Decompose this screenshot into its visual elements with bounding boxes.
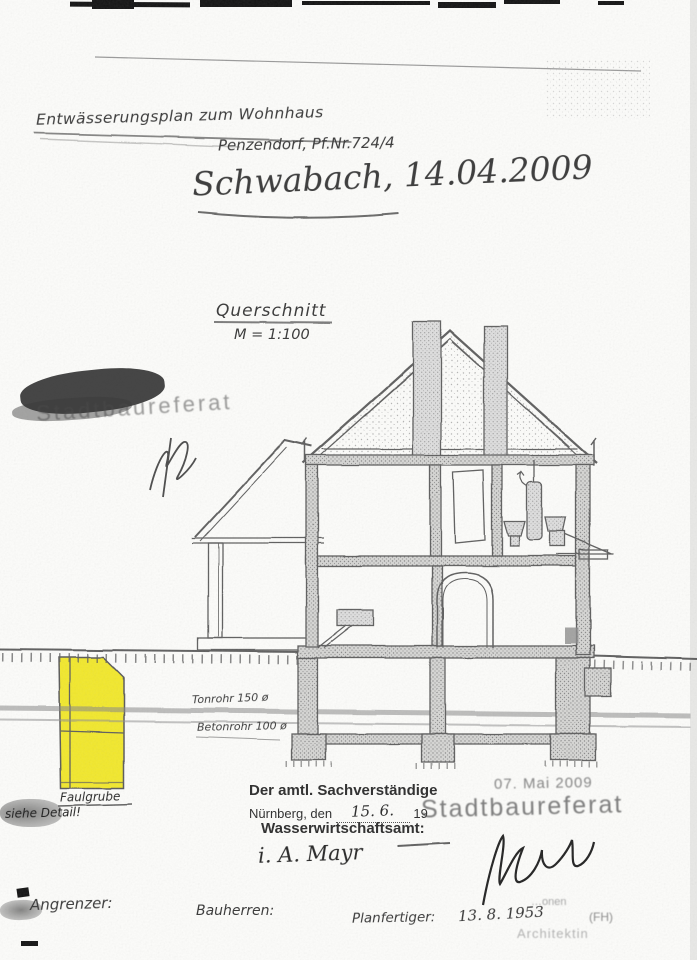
section-scale: M = 1:100 <box>234 328 310 344</box>
septic-pit-label: Faulgrube <box>60 790 121 804</box>
signature-title: Architektin <box>517 927 589 941</box>
scanned-drainage-plan-page: Entwässerungsplan zum Wohnhaus Penzendor… <box>0 0 697 960</box>
top-stamp-number: 16. <box>103 371 125 389</box>
office-line: Wasserwirtschaftsamt: <box>261 821 425 838</box>
neighbors-label: Angrenzer: <box>30 895 113 914</box>
signature-degree: (FH) <box>589 911 613 924</box>
section-caption: Querschnitt <box>216 302 326 321</box>
pipe-label-concrete: Betonrohr 100 ø <box>197 720 287 734</box>
owners-label: Bauherren: <box>196 904 274 919</box>
expert-line: Der amtl. Sachverständige <box>249 783 437 800</box>
detail-note-label: siehe Detail! <box>5 806 81 821</box>
parcel-number: Penzendorf, Pf.Nr.724/4 <box>218 134 395 154</box>
city-prefix: Nürnberg, den <box>249 806 332 821</box>
bottom-stamp-office: Stadtbaureferat <box>421 791 624 824</box>
handwritten-day: 15. 6. <box>351 802 394 820</box>
handwritten-initials: i. A. Mayr <box>258 841 363 868</box>
drafter-label: Planfertiger: <box>352 910 436 926</box>
